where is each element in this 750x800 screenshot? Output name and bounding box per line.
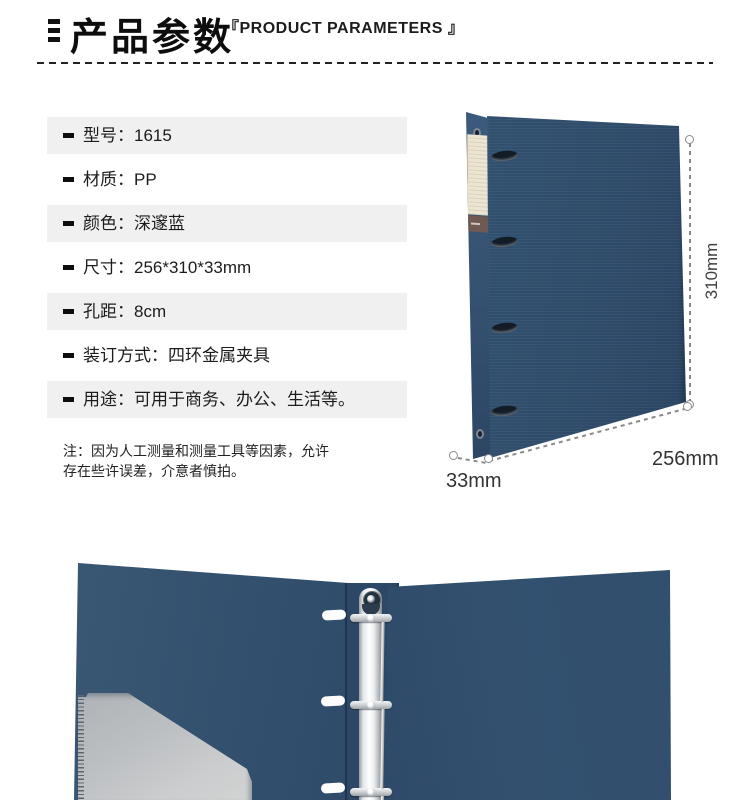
binder-front-cover [487,113,687,463]
open-binder-right-cover [380,545,672,800]
spec-list: 型号：1615 材质：PP 颜色：深邃蓝 尺寸：256*310*33mm 孔距：… [47,117,407,425]
product-parameters-page: 产品参数 『PRODUCT PARAMETERS 』 型号：1615 材质：PP… [0,0,750,800]
dash-bullet-icon [63,397,74,402]
spec-label: 颜色： [83,214,134,233]
spec-row-model: 型号：1615 [47,117,407,154]
grommet-icon [476,429,484,439]
note-line: 存在些许误差，介意者慎拍。 [63,461,393,481]
dash-bullet-icon [63,221,74,226]
ring-bracket [350,788,392,796]
spec-row-hole-distance: 孔距：8cm [47,293,407,330]
rivet-slot-icon [490,321,518,334]
spec-label: 孔距： [83,302,134,321]
punch-slot-icon [322,609,346,620]
measurement-note: 注：因为人工测量和测量工具等因素，允许 存在些许误差，介意者慎拍。 [63,441,393,482]
spec-row-size: 尺寸：256*310*33mm [47,249,407,286]
spec-label: 材质： [83,170,134,189]
rivet-slot-icon [490,404,518,417]
pocket-perforation [78,695,84,800]
binder-closed-image: 310mm 256mm 33mm [440,103,750,503]
brand-tag [467,215,488,232]
spec-row-binding: 装订方式：四环金属夹具 [47,337,407,374]
ring-wire [381,796,384,800]
dashed-divider [37,62,713,64]
spec-value: 深邃蓝 [134,214,185,233]
spec-value: 8cm [134,302,166,321]
dimension-endpoint-icon [449,451,458,460]
page-title: 产品参数 [70,6,234,61]
spec-label: 型号： [83,126,134,145]
spine-label [467,134,489,216]
spec-value: 1615 [134,126,172,145]
height-dimension-label: 310mm [702,231,722,311]
rivet-slot-icon [490,235,518,248]
width-dimension-label: 256mm [652,448,719,471]
spec-value: 四环金属夹具 [168,346,270,365]
spec-value: 可用于商务、办公、生活等。 [134,390,355,409]
dash-bullet-icon [63,353,74,358]
dash-bullet-icon [63,133,74,138]
page-subtitle: 『PRODUCT PARAMETERS 』 [223,14,464,38]
note-line: 注：因为人工测量和测量工具等因素，允许 [63,441,393,461]
dimension-endpoint-icon [685,135,694,144]
dash-bullet-icon [63,265,74,270]
spec-label: 尺寸： [83,258,134,277]
bars-icon [48,19,61,45]
spec-label: 装订方式： [83,346,168,365]
binder-open-image [0,545,750,800]
dimension-endpoint-icon [683,402,692,411]
punch-slot-icon [321,695,345,706]
spec-value: PP [134,170,157,189]
spec-row-color: 颜色：深邃蓝 [47,205,407,242]
ring-bracket [350,701,392,709]
spec-label: 用途： [83,390,134,409]
punch-slot-icon [321,782,345,793]
dash-bullet-icon [63,177,74,182]
ring-bracket [350,614,392,622]
spec-row-usage: 用途：可用于商务、办公、生活等。 [47,381,407,418]
spec-value: 256*310*33mm [134,258,251,277]
binder-spine [466,109,491,459]
dimension-line-height [689,143,691,406]
dash-bullet-icon [63,309,74,314]
spec-row-material: 材质：PP [47,161,407,198]
rivet-slot-icon [490,149,518,162]
depth-dimension-label: 33mm [446,470,502,493]
